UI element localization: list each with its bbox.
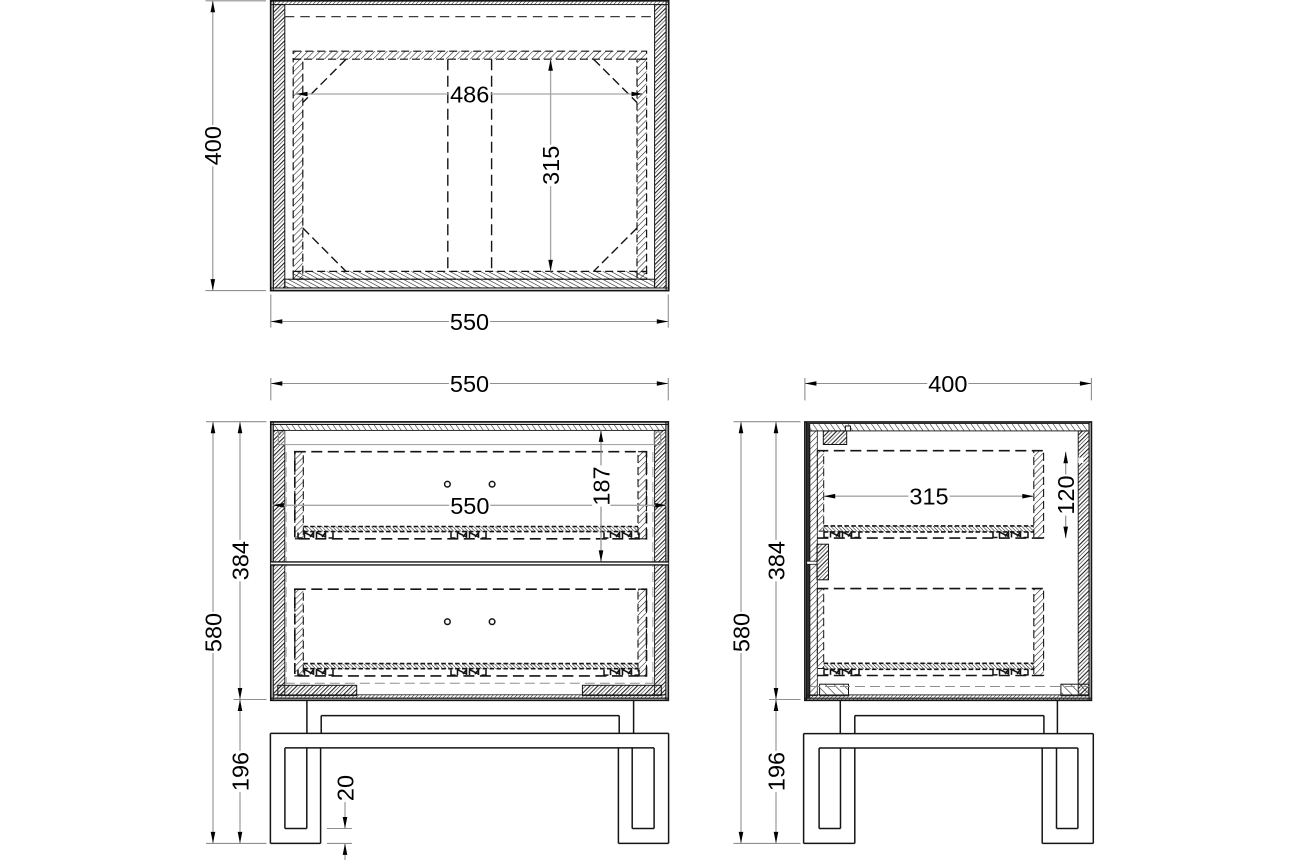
svg-text:550: 550 bbox=[450, 493, 489, 519]
svg-text:20: 20 bbox=[332, 775, 358, 801]
svg-text:400: 400 bbox=[200, 126, 226, 165]
svg-text:196: 196 bbox=[763, 752, 789, 791]
svg-text:384: 384 bbox=[227, 541, 253, 580]
svg-text:550: 550 bbox=[450, 309, 489, 335]
svg-text:580: 580 bbox=[200, 613, 226, 652]
svg-text:580: 580 bbox=[728, 613, 754, 652]
svg-text:196: 196 bbox=[227, 752, 253, 791]
svg-text:384: 384 bbox=[763, 541, 789, 580]
svg-text:550: 550 bbox=[450, 371, 489, 397]
svg-text:400: 400 bbox=[928, 371, 967, 397]
svg-text:315: 315 bbox=[909, 484, 948, 510]
svg-text:120: 120 bbox=[1053, 475, 1079, 514]
svg-text:315: 315 bbox=[538, 146, 564, 185]
svg-text:486: 486 bbox=[450, 81, 489, 107]
svg-text:187: 187 bbox=[589, 466, 615, 505]
